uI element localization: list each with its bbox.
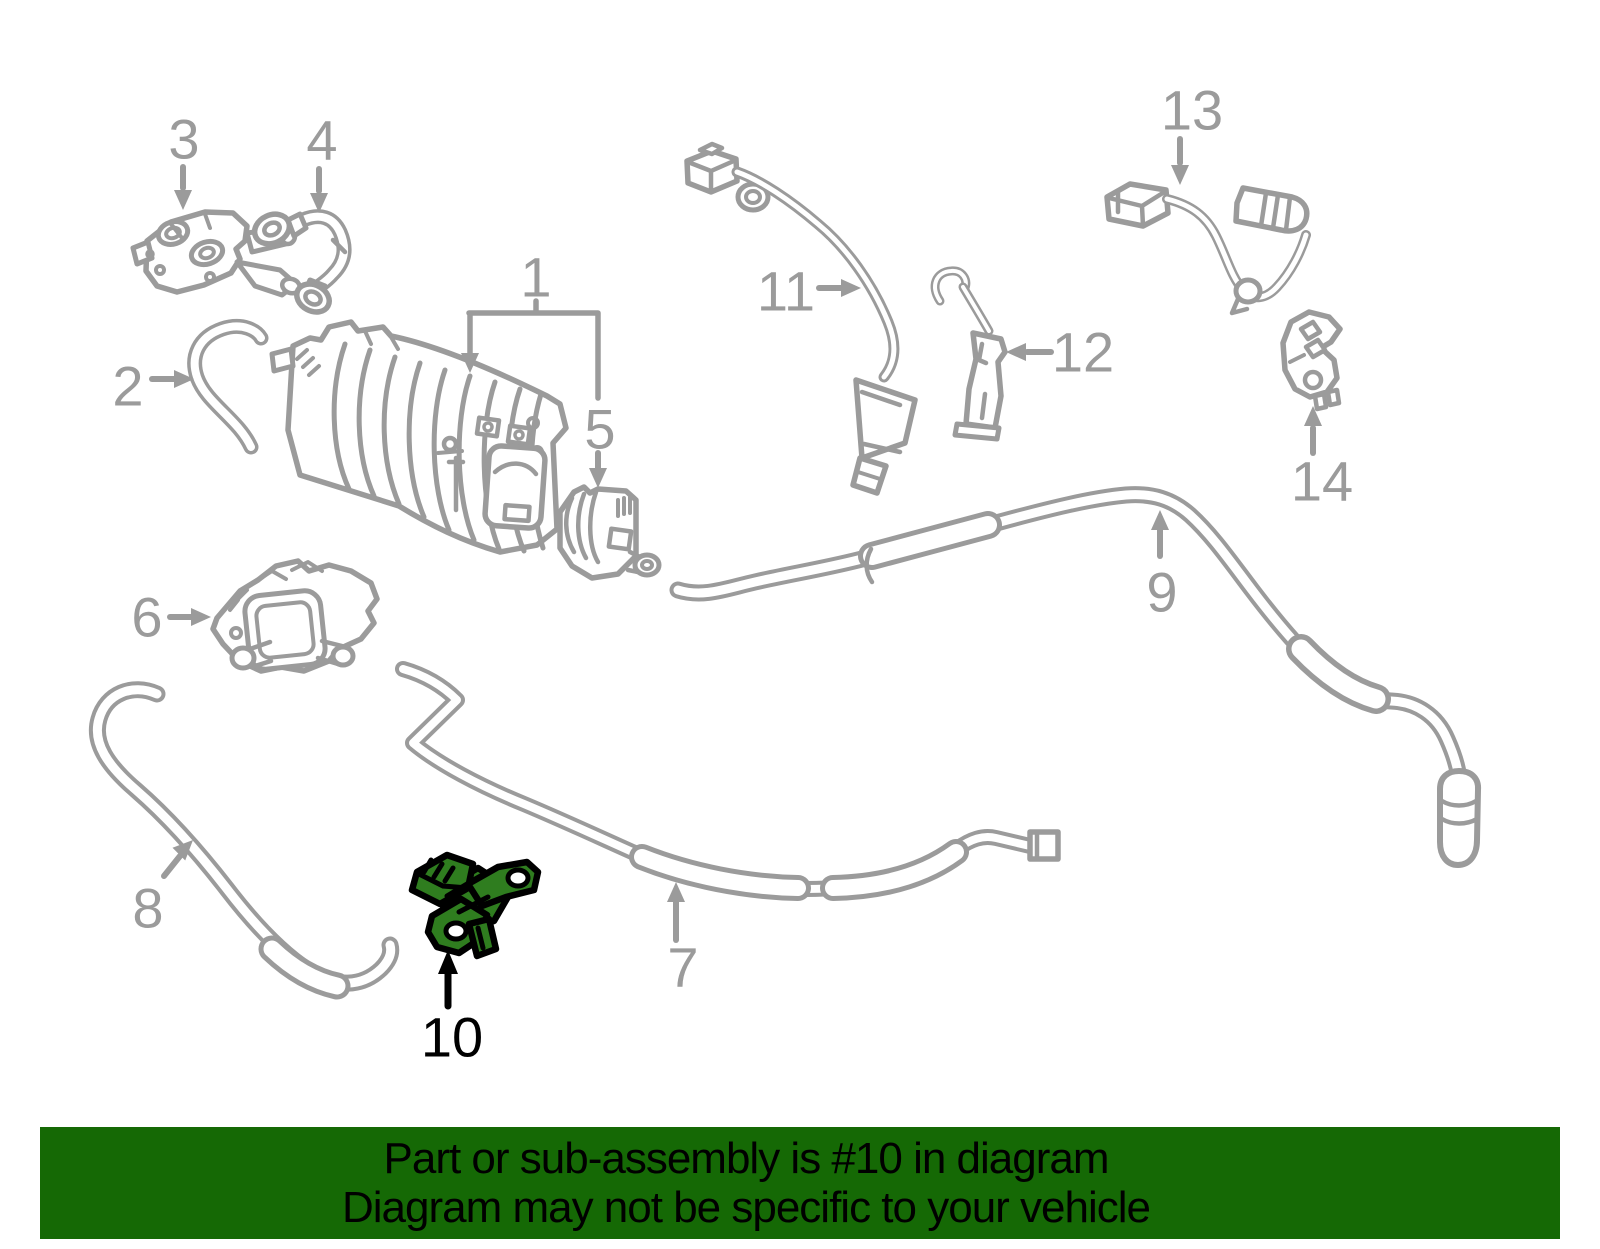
banner-line-1: Part or sub-assembly is #10 in diagram bbox=[384, 1134, 1109, 1183]
part-8-hose-drawing[interactable] bbox=[97, 690, 390, 986]
callout-9-arrow bbox=[1151, 510, 1169, 556]
part-12-bracket-drawing[interactable] bbox=[935, 271, 1005, 439]
callout-label-14[interactable]: 14 bbox=[1291, 449, 1353, 514]
callout-label-4[interactable]: 4 bbox=[306, 108, 337, 173]
callout-2-arrow bbox=[152, 370, 194, 388]
callout-label-12[interactable]: 12 bbox=[1052, 320, 1114, 385]
callout-7-arrow bbox=[667, 882, 685, 940]
callout-label-5[interactable]: 5 bbox=[584, 397, 615, 462]
part-2-hose-drawing[interactable] bbox=[195, 326, 261, 447]
highlight-banner: Part or sub-assembly is #10 in diagram D… bbox=[40, 1127, 1560, 1239]
part-13-sensor-drawing[interactable] bbox=[1107, 184, 1307, 313]
callout-label-13[interactable]: 13 bbox=[1161, 78, 1223, 143]
callout-label-7[interactable]: 7 bbox=[667, 935, 698, 1000]
callout-label-2[interactable]: 2 bbox=[112, 354, 143, 419]
part-5-valve-drawing[interactable] bbox=[560, 487, 659, 578]
callout-label-11[interactable]: 11 bbox=[757, 259, 815, 324]
parts-diagram-page: 1 2 3 4 5 6 7 8 9 10 11 12 13 14 Part or… bbox=[0, 0, 1600, 1249]
callout-label-9[interactable]: 9 bbox=[1146, 560, 1177, 625]
part-4-hose-drawing[interactable] bbox=[250, 209, 345, 318]
callout-10-arrow bbox=[438, 950, 458, 1006]
callout-3-arrow bbox=[174, 167, 192, 210]
callout-label-6[interactable]: 6 bbox=[131, 585, 162, 650]
diagram-canvas bbox=[0, 0, 1600, 1130]
part-14-bracket-drawing[interactable] bbox=[1283, 312, 1340, 409]
part-9-hose-drawing[interactable] bbox=[678, 495, 1478, 865]
part-10-highlighted-sensor-drawing[interactable] bbox=[412, 855, 538, 956]
part-7-hose-drawing[interactable] bbox=[403, 669, 1058, 889]
callout-12-arrow bbox=[1006, 343, 1051, 361]
callout-11-arrow bbox=[819, 279, 861, 297]
part-1-canister-drawing[interactable] bbox=[272, 322, 566, 552]
callout-14-arrow bbox=[1304, 406, 1322, 453]
callout-label-3[interactable]: 3 bbox=[168, 107, 199, 172]
banner-line-2: Diagram may not be specific to your vehi… bbox=[342, 1183, 1150, 1232]
part-6-valve-drawing[interactable] bbox=[213, 561, 377, 671]
callout-label-1[interactable]: 1 bbox=[520, 245, 551, 310]
callout-13-arrow bbox=[1171, 139, 1189, 185]
callout-label-8[interactable]: 8 bbox=[132, 876, 163, 941]
callout-label-10-highlighted[interactable]: 10 bbox=[421, 1005, 483, 1070]
callout-6-arrow bbox=[170, 608, 211, 626]
callout-4-arrow bbox=[310, 169, 328, 213]
